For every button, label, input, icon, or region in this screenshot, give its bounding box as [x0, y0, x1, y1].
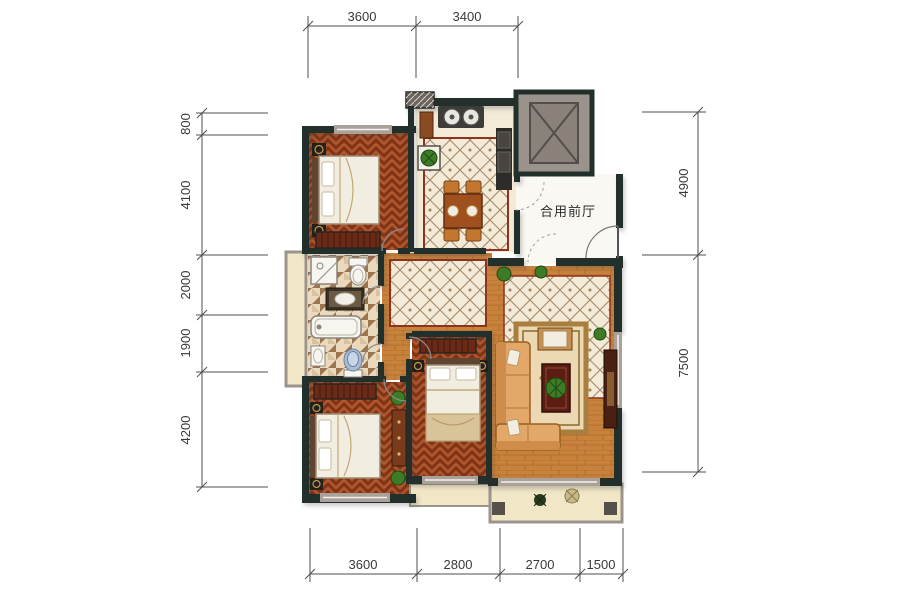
tv-screen	[607, 372, 614, 406]
nightstand	[310, 478, 323, 490]
wall-left-upper	[302, 126, 309, 252]
wall-hall-left-b	[514, 210, 520, 254]
dimension-right: 4900 7500	[642, 107, 706, 477]
console-artwork	[543, 331, 567, 347]
dim-label-bottom-2: 2800	[444, 557, 473, 572]
shared-hall-label: 合用前厅	[540, 204, 596, 219]
nightstand	[310, 402, 323, 414]
dining-chair	[466, 229, 481, 241]
toilet	[350, 265, 366, 285]
dimension-bottom: 3600 2800 2700 1500	[305, 528, 628, 582]
dim-label-left-4: 1900	[178, 329, 193, 358]
throw-pillow	[506, 349, 520, 366]
wall-bedroom3-top	[412, 331, 492, 337]
wall-bedroom3-left-b	[406, 359, 412, 478]
wall-hall-living-b	[556, 258, 622, 266]
elevator	[516, 92, 592, 174]
floorplan-canvas: 3600 3400 3600 2800 2700 1500 800 4100	[0, 0, 900, 600]
bottom-balcony	[490, 484, 622, 522]
wall-hall-right-upper	[616, 174, 623, 228]
bedroom-1-furniture	[312, 143, 380, 248]
shared-hall-floor	[516, 174, 620, 264]
kitchen-cabinet	[420, 112, 433, 138]
wall-bedroom3-left-a	[406, 333, 412, 339]
toilet2-lid	[348, 352, 359, 367]
dim-label-top-1: 3600	[348, 9, 377, 24]
wardrobe	[314, 384, 376, 399]
bed-headboard	[312, 158, 319, 222]
side-balcony	[286, 252, 306, 386]
bed-pillow	[319, 448, 331, 470]
wall-bedroom1-bottom-b	[398, 248, 410, 254]
wall-living-right-upper	[614, 266, 622, 332]
shower	[311, 257, 337, 284]
bed-headboard	[426, 358, 480, 365]
sink	[335, 293, 355, 305]
plant-icon	[594, 328, 606, 340]
dim-label-left-2: 4100	[178, 181, 193, 210]
corridor-branch-floor	[382, 333, 410, 380]
vent-shaft-hatch	[406, 92, 434, 108]
bed-pillow	[319, 420, 331, 442]
bay-window-strip	[410, 484, 490, 506]
bed-pillow	[322, 162, 334, 186]
bed-pillow	[430, 368, 450, 380]
corridor-rug	[390, 260, 486, 326]
dim-label-bottom-3: 2700	[526, 557, 555, 572]
dim-label-bottom-4: 1500	[587, 557, 616, 572]
appliance-icon	[498, 132, 510, 148]
burner-center	[469, 115, 474, 120]
floorplan-page: 3600 3400 3600 2800 2700 1500 800 4100	[0, 0, 900, 600]
bed-blanket	[426, 414, 480, 441]
wall-bath-right-a	[378, 252, 384, 286]
dim-label-bottom-1: 3600	[349, 557, 378, 572]
plant-icon	[497, 267, 511, 281]
wall-bath-right-c	[378, 362, 384, 378]
dining-chair	[466, 181, 481, 193]
sofa-backrest	[496, 441, 560, 450]
dim-label-right-1: 4900	[676, 169, 691, 198]
wall-hall-living-a	[488, 258, 524, 266]
bed-headboard	[310, 416, 316, 476]
plate	[467, 206, 478, 217]
dimension-top: 3600 3400	[303, 9, 523, 78]
burner-center	[450, 115, 455, 120]
wall-bedroom3-right	[486, 331, 492, 478]
dresser-knob	[397, 452, 400, 455]
dim-label-left-1: 800	[178, 113, 193, 135]
plant-icon	[391, 471, 405, 485]
balcony-column	[604, 502, 617, 515]
plant-icon	[535, 266, 547, 278]
dresser-knob	[397, 436, 400, 439]
wall-left-lower	[302, 378, 309, 503]
dining-chair	[444, 229, 459, 241]
appliance-icon	[498, 152, 510, 172]
plant-icon	[391, 391, 405, 405]
dim-label-left-3: 2000	[178, 271, 193, 300]
nightstand	[412, 360, 424, 372]
dining-chair	[444, 181, 459, 193]
dim-label-left-5: 4200	[178, 416, 193, 445]
plate	[448, 206, 459, 217]
bed-pillow	[456, 368, 476, 380]
bed-pillow	[322, 192, 334, 216]
wall-bath-right-b	[378, 304, 384, 344]
wall-bedroom1-kitchen	[408, 106, 414, 252]
throw-pillow	[507, 419, 520, 436]
wall-corridor-top	[414, 248, 486, 254]
dimension-left: 800 4100 2000 1900 4200	[178, 108, 268, 492]
dresser-knob	[397, 420, 400, 423]
balcony-column	[492, 502, 505, 515]
dim-label-right-2: 7500	[676, 349, 691, 378]
dim-label-top-2: 3400	[453, 9, 482, 24]
bathtub-faucet-icon	[317, 325, 322, 330]
wall-bedroom1-bottom-a	[302, 248, 386, 254]
